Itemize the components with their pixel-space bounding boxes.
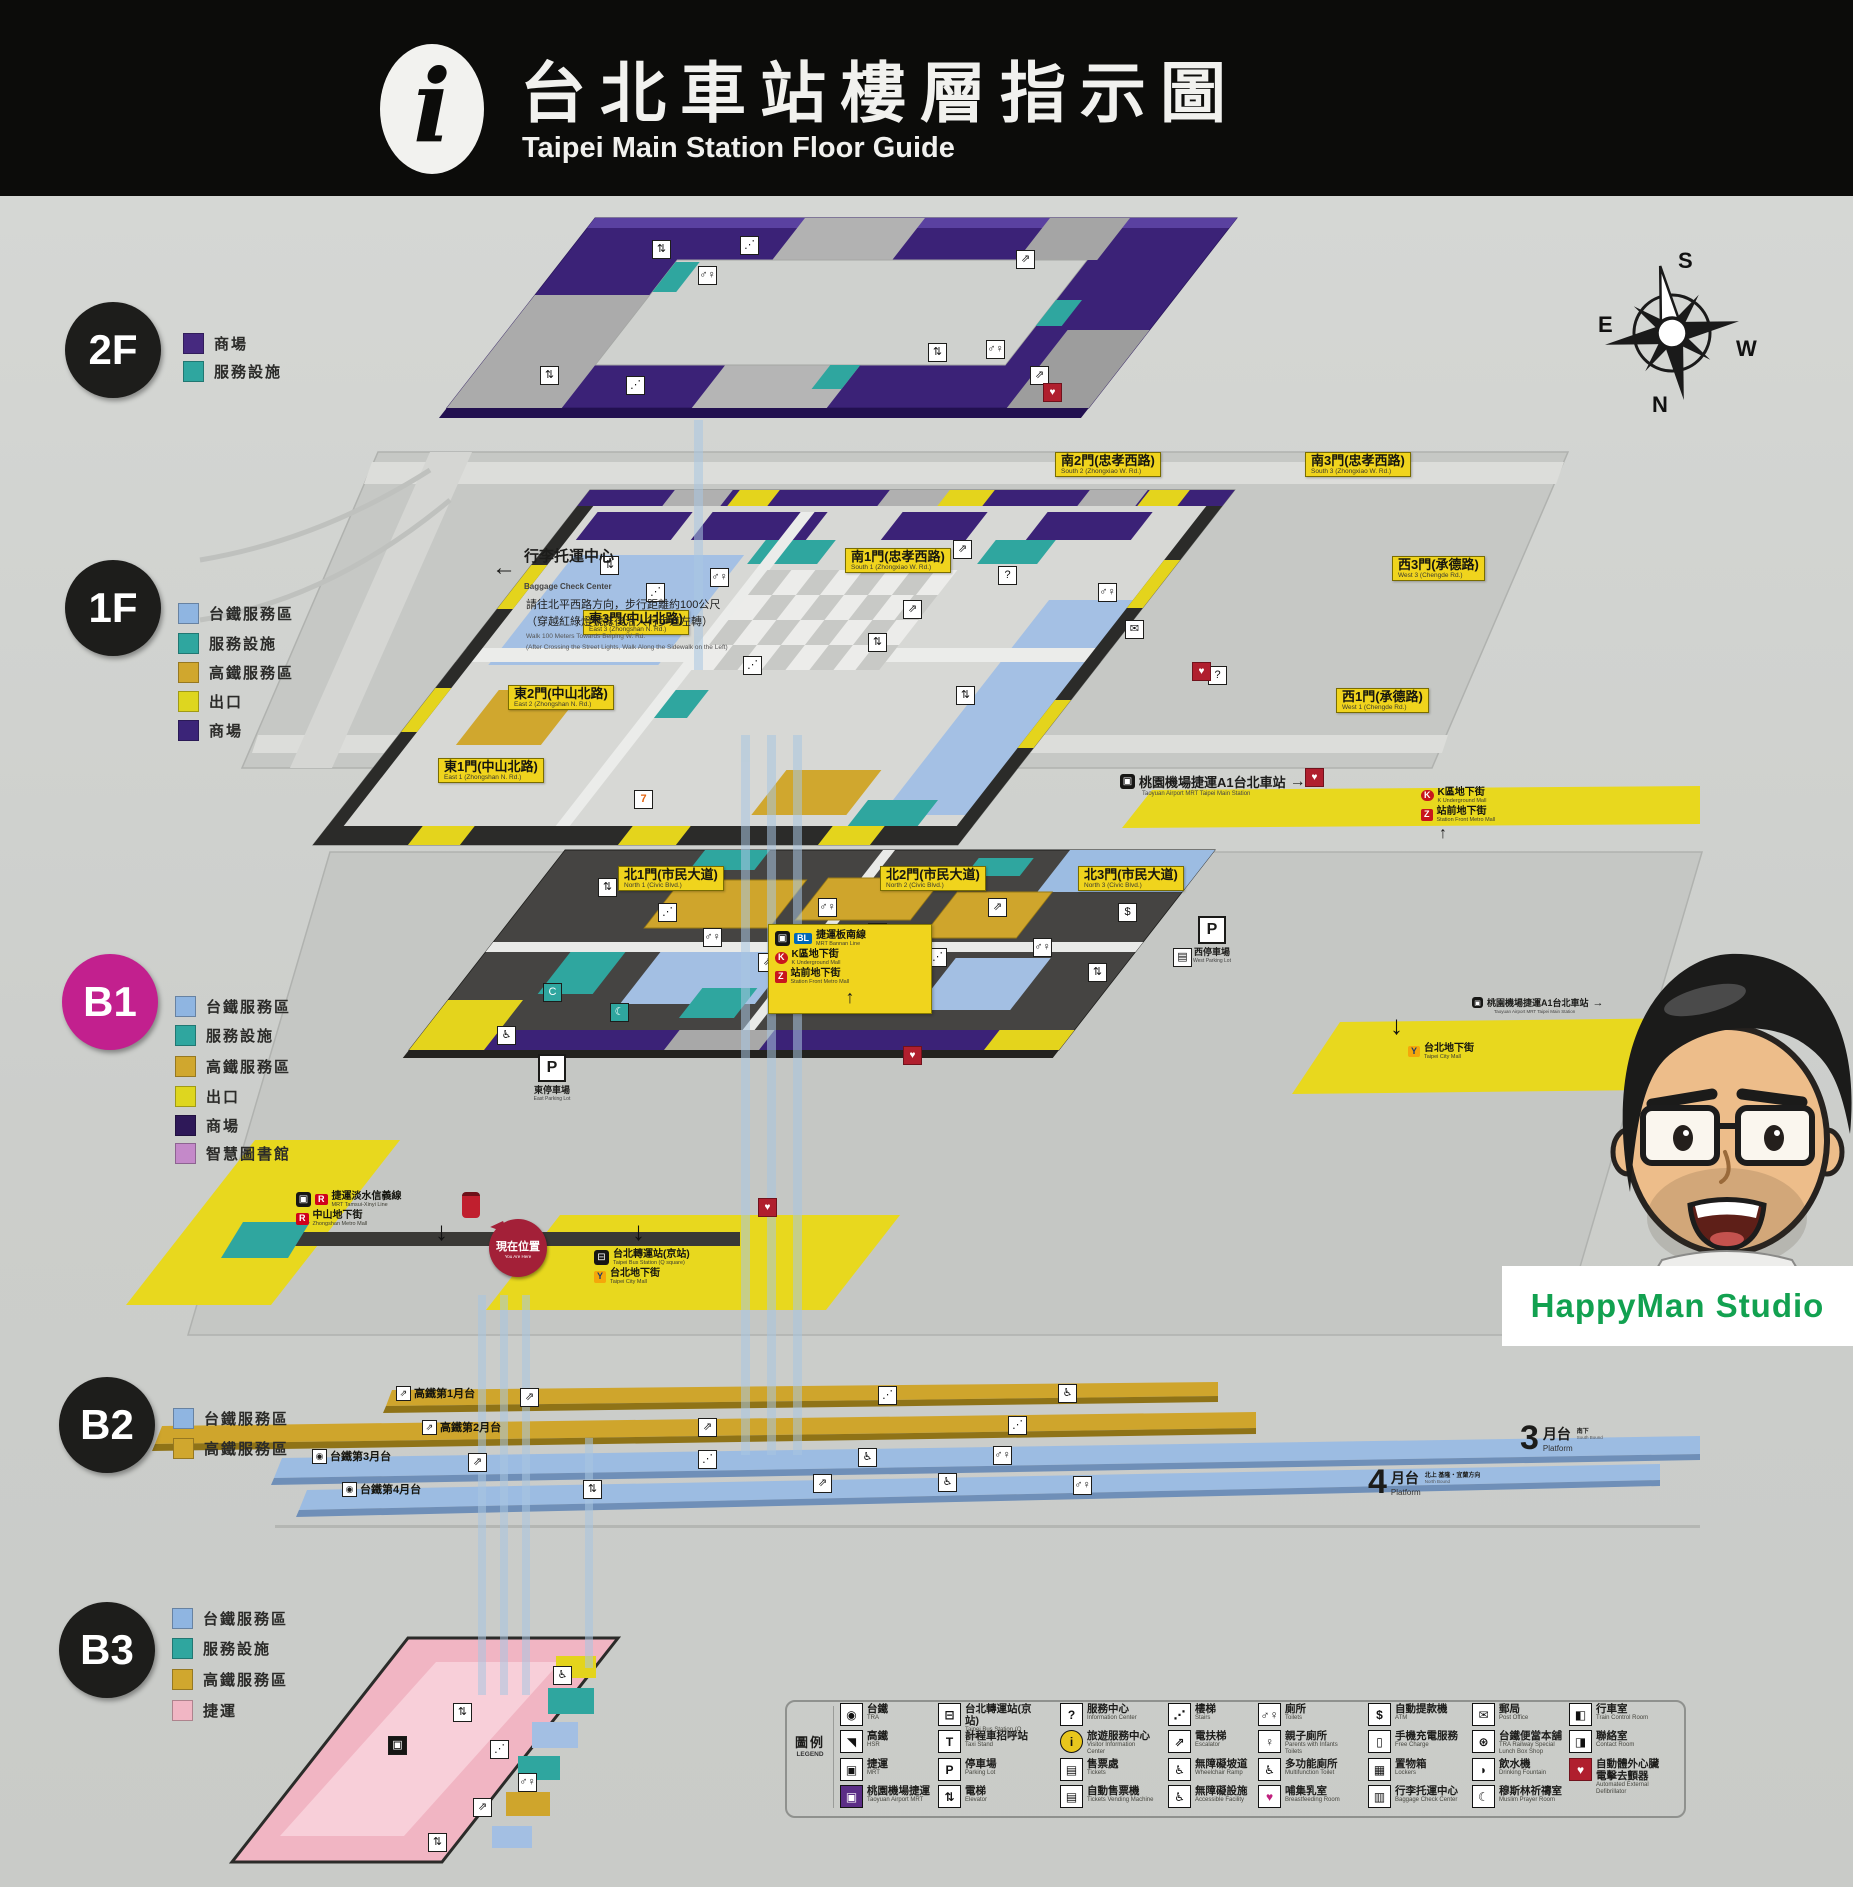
info-icon: i (380, 44, 484, 174)
legend-color-label: 出口 (209, 691, 243, 712)
gate-name-en: West 1 (Chengde Rd.) (1342, 704, 1423, 711)
airport-mrt-sign-b1: ▣ 桃園機場捷運A1台北車站 → Taoyuan Airport MRT Tai… (1472, 996, 1604, 1014)
arrow-right-icon: → (1593, 997, 1604, 1009)
facility-icon: ⋰ (658, 903, 677, 922)
legend-color-label: 台鐵服務區 (206, 996, 291, 1017)
gate-name-en: South 3 (Zhongxiao W. Rd.) (1311, 468, 1405, 475)
legend-color-label: 出口 (206, 1086, 240, 1107)
compass-south-label: S (1678, 248, 1693, 274)
legend-item: ♿ 多功能廁所Multifunction Toilet (1258, 1758, 1352, 1781)
legend-item: ♿ 無障礙設施Accessible Facility (1168, 1785, 1262, 1808)
b1-city-mall-panel: Y 台北地下街Taipei City Mall (1402, 1038, 1564, 1065)
facility-icon: ⋰ (1008, 1416, 1027, 1435)
legend-item: $ 自動提款機ATM (1368, 1703, 1462, 1726)
parking-icon: P (1198, 916, 1226, 944)
facility-icon: ♂♀ (1033, 938, 1052, 957)
b1-kz-panel: K K區地下街K Underground Mall Z 站前地下街Station… (1415, 782, 1567, 848)
legend-item-icon: ♿ (1168, 1758, 1191, 1781)
floor-guide-sign: i 台北車站樓層指示圖 Taipei Main Station Floor Gu… (0, 0, 1853, 1887)
legend-item: ◧ 行車室Train Control Room (1569, 1703, 1663, 1726)
legend-item-icon: ⊛ (1472, 1730, 1495, 1753)
floor-legend-row: 服務設施 (175, 1025, 274, 1046)
direction-arrow-icon: ↓ (1390, 1010, 1403, 1041)
legend-item-icon: ◨ (1569, 1730, 1592, 1753)
legend-item-icon: ▦ (1368, 1758, 1391, 1781)
legend-item-icon: ♥ (1258, 1785, 1281, 1808)
legend-color-swatch (172, 1700, 193, 1721)
legend-color-label: 台鐵服務區 (204, 1408, 289, 1429)
facility-icon: ♿ (497, 1026, 516, 1045)
legend-item-icon: ▣ (840, 1785, 863, 1808)
facility-icon: ⇅ (453, 1703, 472, 1722)
facility-icon: ⇗ (473, 1798, 492, 1817)
legend-item-icon: ▤ (1060, 1785, 1083, 1808)
facility-icon: ⋰ (698, 1450, 717, 1469)
legend-item: ♀ 親子廁所Parents with Infants Toilets (1258, 1730, 1352, 1755)
floor-legend-row: 商場 (178, 720, 243, 741)
legend-color-swatch (178, 691, 199, 712)
gate-name-en: North 1 (Civic Blvd.) (624, 882, 718, 889)
legend-item: ▣ 桃園機場捷運Taoyuan Airport MRT (840, 1785, 934, 1808)
z-mall-logo: Z (775, 971, 787, 983)
platform-icon: ⇗ (396, 1386, 411, 1401)
legend-item-icon: ☾ (1472, 1785, 1495, 1808)
facility-icon: ♂♀ (993, 1446, 1012, 1465)
legend-item: ♥ 自動體外心臟電擊去顫器Automated External Defibril… (1569, 1758, 1663, 1795)
legend-item: ⇅ 電梯Elevator (938, 1785, 1032, 1808)
legend-color-swatch (175, 1115, 196, 1136)
baggage-body-2: （穿越紅綠燈號誌後沿人行步道左轉） (526, 616, 792, 630)
legend-color-label: 高鐵服務區 (206, 1056, 291, 1077)
gate-name-cn: 北1門(市民大道) (624, 868, 718, 882)
gate-name-en: South 2 (Zhongxiao W. Rd.) (1061, 468, 1155, 475)
facility-icon: ⇅ (928, 343, 947, 362)
legend-color-swatch (178, 603, 199, 624)
facility-icon: ♂♀ (986, 340, 1005, 359)
legend-color-swatch (172, 1669, 193, 1690)
legend-item: ⇗ 電扶梯Escalator (1168, 1730, 1262, 1753)
floor-legend-row: 出口 (175, 1086, 240, 1107)
exit-gate-label: 北1門(市民大道) North 1 (Civic Blvd.) (618, 866, 724, 891)
airport-mrt-sign-1f: ▣ 桃園機場捷運A1台北車站 → Taoyuan Airport MRT Tai… (1120, 772, 1306, 797)
legend-item: ▯ 手機充電服務Free Charge (1368, 1730, 1462, 1753)
facility-icon: 7 (634, 790, 653, 809)
legend-item: T 計程車招呼站Taxi Stand (938, 1730, 1032, 1753)
facility-icon: ♥ (1043, 383, 1062, 402)
facility-icon: ⇗ (468, 1453, 487, 1472)
gate-name-en: West 3 (Chengde Rd.) (1398, 572, 1479, 579)
floor-legend-row: 服務設施 (172, 1638, 271, 1659)
legend-item-icon: ⇗ (1168, 1730, 1191, 1753)
legend-item-icon: ◉ (840, 1703, 863, 1726)
parking-icon: P (538, 1054, 566, 1082)
gate-name-en: North 2 (Civic Blvd.) (886, 882, 980, 889)
gate-name-en: South 1 (Zhongxiao W. Rd.) (851, 564, 945, 571)
section-divider (275, 1525, 1700, 1528)
floor-legend-row: 台鐵服務區 (173, 1408, 289, 1429)
exit-gate-label: 東2門(中山北路) East 2 (Zhongshan N. Rd.) (508, 685, 614, 710)
gate-name-cn: 北3門(市民大道) (1084, 868, 1178, 882)
facility-icon: C (543, 983, 562, 1002)
legend-color-swatch (175, 1086, 196, 1107)
b1-metro-mall-panel: ▣ BL 捷運板南線MRT Bannan Line K K區地下街K Under… (768, 924, 932, 1014)
y-mall-logo: Y (594, 1271, 606, 1283)
arrow-up-icon: ↑ (1439, 825, 1447, 843)
exit-gate-label: 西1門(承德路) West 1 (Chengde Rd.) (1336, 688, 1429, 713)
red-line-logo: R (296, 1213, 309, 1225)
legend-item: ♿ 無障礙坡道Wheelchair Ramp (1168, 1758, 1262, 1781)
compass-west-label: W (1736, 336, 1757, 362)
floor-label-circle: 2F (65, 302, 161, 398)
legend-item: ♂♀ 廁所Toilets (1258, 1703, 1352, 1726)
legend-item: ◥ 高鐵HSR (840, 1730, 934, 1753)
legend-item-icon: T (938, 1730, 961, 1753)
gate-name-cn: 南3門(忠孝西路) (1311, 454, 1405, 468)
legend-item-icon: ♥ (1569, 1758, 1592, 1781)
facility-icon: ⋰ (878, 1386, 897, 1405)
floor-legend-row: 服務設施 (178, 633, 277, 654)
floor-legend-row: 商場 (183, 333, 248, 354)
facility-icon: ♥ (1305, 768, 1324, 787)
legend-color-label: 高鐵服務區 (204, 1438, 289, 1459)
legend-color-swatch (172, 1638, 193, 1659)
legend-item-icon: ♀ (1258, 1730, 1281, 1753)
baggage-check-note: ← 行李托運中心 Baggage Check Center 請往北平西路方向，步… (492, 540, 792, 652)
red-line-logo: R (315, 1194, 328, 1206)
legend-item-icon: ♿ (1168, 1785, 1191, 1808)
gate-name-cn: 北2門(市民大道) (886, 868, 980, 882)
legend-color-swatch (173, 1408, 194, 1429)
legend-color-label: 服務設施 (214, 361, 282, 382)
platform-4-label: 4 月台Platform 北上 基隆・宜蘭方向North Bound (1368, 1468, 1480, 1497)
legend-item-icon: ♿ (1258, 1758, 1281, 1781)
legend-divider (833, 1706, 834, 1808)
facility-icon: ⇅ (956, 686, 975, 705)
facility-icon: ⇗ (1016, 250, 1035, 269)
legend-title: 圖例 LEGEND (788, 1732, 832, 1758)
legend-item: ☾ 穆斯林祈禱室Muslim Prayer Room (1472, 1785, 1566, 1808)
baggage-body-en1: Walk 100 Meters Towards Beiping W. Rd. (526, 633, 792, 641)
legend-item-icon: ✉ (1472, 1703, 1495, 1726)
gate-name-cn: 東1門(中山北路) (444, 760, 538, 774)
legend-item: ⊛ 台鐵便當本舖TRA Railway Special Lunch Box Sh… (1472, 1730, 1566, 1755)
direction-arrow-icon: ↓ (632, 1216, 645, 1247)
floor-label-circle: B2 (59, 1377, 155, 1473)
platform-icon: ⇗ (422, 1420, 437, 1435)
platform-label: ⇗ 高鐵第1月台 (396, 1385, 475, 1401)
gate-name-cn: 西1門(承德路) (1342, 690, 1423, 704)
watermark-banner: HappyMan Studio (1502, 1266, 1853, 1346)
gate-name-en: East 2 (Zhongshan N. Rd.) (514, 701, 608, 708)
facility-icon: $ (1118, 903, 1137, 922)
legend-color-label: 商場 (209, 720, 243, 741)
gate-name-en: North 3 (Civic Blvd.) (1084, 882, 1178, 889)
legend-item: ▥ 行李托運中心Baggage Check Center (1368, 1785, 1462, 1808)
legend-color-swatch (172, 1608, 193, 1629)
bannan-line-logo: BL (794, 933, 812, 945)
facility-icon: ⇅ (428, 1833, 447, 1852)
arrow-left-icon: ← (492, 554, 516, 582)
facility-icon: ♂♀ (518, 1773, 537, 1792)
legend-color-label: 台鐵服務區 (209, 603, 294, 624)
facility-icon: ⇗ (698, 1418, 717, 1437)
east-parking-label: P 東停車場 East Parking Lot (517, 1054, 587, 1102)
facility-icon: ♿ (858, 1448, 877, 1467)
compass-icon (1593, 254, 1751, 412)
train-icon: ▣ (1472, 997, 1483, 1008)
legend-color-swatch (178, 662, 199, 683)
baggage-body-en2: (After Crossing the Street Lights, Walk … (526, 644, 792, 652)
legend-color-swatch (175, 1143, 196, 1164)
facility-icon: ♿ (1058, 1384, 1077, 1403)
exit-gate-label: 西3門(承德路) West 3 (Chengde Rd.) (1392, 556, 1485, 581)
facility-icon: ⋰ (626, 376, 645, 395)
exit-gate-label: 北2門(市民大道) North 2 (Civic Blvd.) (880, 866, 986, 891)
facility-icon: ▣ (388, 1736, 407, 1755)
legend-item-icon: ◧ (1569, 1703, 1592, 1726)
legend-color-swatch (175, 996, 196, 1017)
gate-name-cn: 東2門(中山北路) (514, 687, 608, 701)
legend-item-icon: ⇅ (938, 1785, 961, 1808)
exit-gate-label: 南1門(忠孝西路) South 1 (Zhongxiao W. Rd.) (845, 548, 951, 573)
k-mall-logo: K (775, 952, 788, 964)
mrt-icon: ▣ (775, 931, 790, 946)
gate-name-cn: 西3門(承德路) (1398, 558, 1479, 572)
facility-icon: ⇗ (988, 898, 1007, 917)
facility-icon: ☾ (610, 1003, 629, 1022)
gate-name-cn: 南2門(忠孝西路) (1061, 454, 1155, 468)
floor-label-circle: 1F (65, 560, 161, 656)
watermark-text: HappyMan Studio (1531, 1287, 1825, 1325)
legend-item-icon: ◗ (1472, 1758, 1495, 1781)
legend-color-swatch (178, 633, 199, 654)
bus-icon: ⊟ (594, 1250, 609, 1265)
baggage-title-cn: 行李托運中心 (524, 548, 614, 565)
facility-icon: ⋰ (490, 1740, 509, 1759)
arrow-right-icon: → (1290, 773, 1306, 791)
facility-icon: ⇅ (1088, 963, 1107, 982)
facility-icon: ♂♀ (1098, 583, 1117, 602)
platform-label: ⇗ 高鐵第2月台 (422, 1419, 501, 1435)
platform-icon: ◉ (312, 1449, 327, 1464)
facility-icon: ⇗ (903, 600, 922, 619)
arrow-up-icon: ↑ (846, 987, 855, 1008)
facility-icon: ♥ (903, 1046, 922, 1065)
platform-icon: ◉ (342, 1482, 357, 1497)
floor-legend-row: 商場 (175, 1115, 240, 1136)
facility-icon: ⋰ (743, 656, 762, 675)
facility-icon: ♂♀ (1073, 1476, 1092, 1495)
legend-item-icon: ? (1060, 1703, 1083, 1726)
floor-label-circle: B3 (59, 1602, 155, 1698)
here-marker-icon (462, 1192, 480, 1218)
page-subtitle: Taipei Main Station Floor Guide (522, 132, 955, 165)
train-icon: ▣ (1120, 774, 1135, 789)
facility-icon: ⋰ (740, 236, 759, 255)
floor-legend-row: 高鐵服務區 (178, 662, 294, 683)
legend-item: ♥ 哺集乳室Breastfeeding Room (1258, 1785, 1352, 1808)
legend-color-label: 智慧圖書館 (206, 1143, 291, 1164)
legend-color-swatch (173, 1438, 194, 1459)
legend-item: ◨ 聯絡室Contact Room (1569, 1730, 1663, 1753)
floor-legend-row: 高鐵服務區 (173, 1438, 289, 1459)
legend-color-swatch (183, 333, 204, 354)
floor-label-circle: B1 (62, 954, 158, 1050)
facility-icon: ? (998, 566, 1017, 585)
gate-name-en: East 1 (Zhongshan N. Rd.) (444, 774, 538, 781)
you-are-here-badge: 現在位置 You Are Here (489, 1219, 547, 1277)
exit-gate-label: 南2門(忠孝西路) South 2 (Zhongxiao W. Rd.) (1055, 452, 1161, 477)
floor-legend-row: 服務設施 (183, 361, 282, 382)
baggage-title-en: Baggage Check Center (524, 582, 612, 591)
exit-gate-label: 北3門(市民大道) North 3 (Civic Blvd.) (1078, 866, 1184, 891)
platform-label: ◉ 台鐵第3月台 (312, 1448, 391, 1464)
legend-color-swatch (178, 720, 199, 741)
legend-item-icon: ⋰ (1168, 1703, 1191, 1726)
floor-legend-row: 高鐵服務區 (172, 1669, 288, 1690)
page-title: 台北車站樓層指示圖 (520, 40, 1320, 136)
legend-color-swatch (175, 1025, 196, 1046)
facility-icon: ⇅ (598, 878, 617, 897)
legend-item-icon: P (938, 1758, 961, 1781)
legend-item: ▦ 置物箱Lockers (1368, 1758, 1462, 1781)
legend-item: ▤ 售票處Tickets (1060, 1758, 1154, 1781)
facility-icon: ⇗ (520, 1388, 539, 1407)
facility-icon: ♿ (938, 1473, 957, 1492)
platform-3-label: 3 月台Platform 南下South Bound (1520, 1424, 1603, 1453)
facility-icon: ♂♀ (698, 266, 717, 285)
facility-icon: ⇅ (652, 240, 671, 259)
west-parking-label: P 西停車場 West Parking Lot (1177, 916, 1247, 964)
legend-color-label: 服務設施 (209, 633, 277, 654)
k-mall-logo: K (1421, 790, 1434, 802)
legend-item-icon: ▤ (1060, 1758, 1083, 1781)
legend-item-icon: ▣ (840, 1758, 863, 1781)
facility-icon: ⇅ (868, 633, 887, 652)
facility-icon: ♂♀ (703, 928, 722, 947)
facility-icon: ⇅ (583, 1480, 602, 1499)
legend-item: ✉ 郵局Post Office (1472, 1703, 1566, 1726)
facility-icon: ✉ (1125, 620, 1144, 639)
baggage-body-1: 請往北平西路方向，步行距離約100公尺 (526, 599, 792, 613)
z-mall-logo: Z (1421, 809, 1433, 821)
legend-item-icon: i (1060, 1730, 1083, 1753)
legend-color-label: 高鐵服務區 (203, 1669, 288, 1690)
gate-name-cn: 南1門(忠孝西路) (851, 550, 945, 564)
legend-item: ◗ 飲水機Drinking Fountain (1472, 1758, 1566, 1781)
legend-item: ▤ 自動售票機Tickets Vending Machine (1060, 1785, 1154, 1808)
floor-2f-shape (439, 218, 1237, 418)
legend-color-label: 捷運 (203, 1700, 237, 1721)
floor-legend-row: 台鐵服務區 (175, 996, 291, 1017)
floor-legend-row: 台鐵服務區 (172, 1608, 288, 1629)
platform-label: ◉ 台鐵第4月台 (342, 1481, 421, 1497)
legend-item: ⋰ 樓梯Stairs (1168, 1703, 1262, 1726)
legend-item: ◉ 台鐵TRA (840, 1703, 934, 1726)
facility-icon: ⇗ (813, 1474, 832, 1493)
facility-icon: ♿ (553, 1666, 572, 1685)
legend-item-icon: ▯ (1368, 1730, 1391, 1753)
legend-color-label: 服務設施 (203, 1638, 271, 1659)
legend-item-icon: ♂♀ (1258, 1703, 1281, 1726)
legend-item: i 旅遊服務中心Visitor Information Center (1060, 1730, 1154, 1755)
floor-legend-row: 捷運 (172, 1700, 237, 1721)
mrt-icon: ▣ (296, 1192, 311, 1207)
legend-item: ▣ 捷運MRT (840, 1758, 934, 1781)
b1-tamsui-line-panel: ▣ R 捷運淡水信義線MRT Tamsui-Xinyi Line R 中山地下街… (290, 1186, 472, 1232)
legend-item-icon: $ (1368, 1703, 1391, 1726)
legend-item-icon: ◥ (840, 1730, 863, 1753)
legend-color-label: 台鐵服務區 (203, 1608, 288, 1629)
facility-icon: ⇅ (540, 366, 559, 385)
y-mall-logo: Y (1408, 1046, 1420, 1058)
legend-item: ? 服務中心Information Center (1060, 1703, 1154, 1726)
header-band: i 台北車站樓層指示圖 Taipei Main Station Floor Gu… (0, 0, 1853, 196)
legend-color-label: 服務設施 (206, 1025, 274, 1046)
compass-north-label: N (1652, 392, 1668, 418)
legend-color-label: 商場 (206, 1115, 240, 1136)
legend-color-label: 商場 (214, 333, 248, 354)
floor-legend-row: 高鐵服務區 (175, 1056, 291, 1077)
legend-item: P 停車場Parking Lot (938, 1758, 1032, 1781)
legend-color-swatch (175, 1056, 196, 1077)
compass-east-label: E (1598, 312, 1613, 338)
floor-legend-row: 台鐵服務區 (178, 603, 294, 624)
legend-item-icon: ⊟ (938, 1703, 961, 1726)
facility-icon: ♂♀ (818, 898, 837, 917)
legend-color-label: 高鐵服務區 (209, 662, 294, 683)
b1-bus-station-panel: ⊟ 台北轉運站(京站)Taipei Bus Station (Q square)… (588, 1244, 780, 1290)
floor-legend-row: 出口 (178, 691, 243, 712)
facility-icon: ⇗ (953, 540, 972, 559)
legend-color-swatch (183, 361, 204, 382)
facility-icon: ♥ (1192, 662, 1211, 681)
legend-item-icon: ▥ (1368, 1785, 1391, 1808)
exit-gate-label: 南3門(忠孝西路) South 3 (Zhongxiao W. Rd.) (1305, 452, 1411, 477)
facility-icon: ♥ (758, 1198, 777, 1217)
floor-legend-row: 智慧圖書館 (175, 1143, 291, 1164)
exit-gate-label: 東1門(中山北路) East 1 (Zhongshan N. Rd.) (438, 758, 544, 783)
